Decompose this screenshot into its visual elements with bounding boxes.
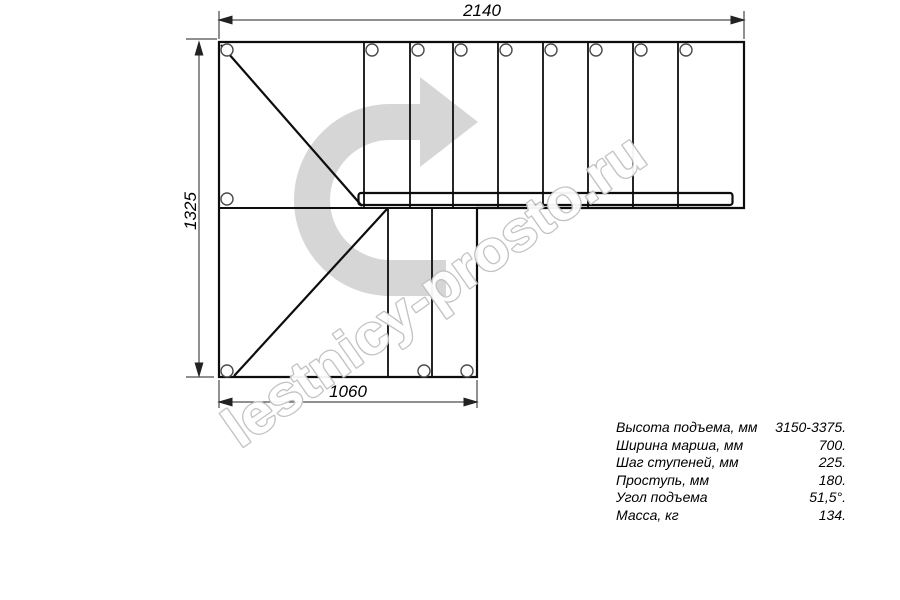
dimension-left-value: 1325 xyxy=(181,192,200,230)
spec-value: 134. xyxy=(819,507,846,525)
site-watermark-text: lestnicy-prosto.ru xyxy=(211,120,657,458)
staircase-drawing-canvas: 2140 1325 1060 lestnicy-prosto.ru Высота… xyxy=(0,0,900,600)
dimension-top: 2140 xyxy=(219,1,744,39)
bolt-hole xyxy=(545,44,557,56)
dim-arrow xyxy=(219,16,232,24)
bolt-hole xyxy=(461,365,473,377)
spec-label: Высота подъема, мм xyxy=(616,419,758,437)
bolt-hole xyxy=(221,365,233,377)
bolt-hole xyxy=(221,193,233,205)
dim-arrow xyxy=(731,16,744,24)
spec-row: Шаг ступеней, мм 225. xyxy=(616,454,846,472)
bolt-hole xyxy=(455,44,467,56)
bolt-hole xyxy=(366,44,378,56)
spec-row: Угол подъема 51,5°. xyxy=(616,489,846,507)
dim-arrow xyxy=(195,363,203,376)
spec-value: 51,5°. xyxy=(809,489,846,507)
dim-arrow xyxy=(464,398,477,406)
bolt-holes xyxy=(221,44,692,377)
spec-label: Проступь, мм xyxy=(616,472,709,490)
spec-label: Шаг ступеней, мм xyxy=(616,454,739,472)
spec-label: Ширина марша, мм xyxy=(616,437,743,455)
spec-value: 180. xyxy=(819,472,846,490)
spec-row: Ширина марша, мм 700. xyxy=(616,437,846,455)
bolt-hole xyxy=(635,44,647,56)
spec-row: Высота подъема, мм 3150-3375. xyxy=(616,419,846,437)
spec-row: Масса, кг 134. xyxy=(616,507,846,525)
bolt-hole xyxy=(680,44,692,56)
bolt-hole xyxy=(418,365,430,377)
spec-label: Угол подъема xyxy=(616,489,708,507)
spec-row: Проступь, мм 180. xyxy=(616,472,846,490)
bolt-hole xyxy=(221,44,233,56)
specs-table: Высота подъема, мм 3150-3375. Ширина мар… xyxy=(616,419,846,524)
bolt-hole xyxy=(412,44,424,56)
dim-arrow xyxy=(195,42,203,55)
bolt-hole xyxy=(590,44,602,56)
dimension-top-value: 2140 xyxy=(462,1,501,20)
dimension-left: 1325 xyxy=(181,39,217,377)
spec-value: 225. xyxy=(819,454,846,472)
spec-value: 3150-3375. xyxy=(775,419,846,437)
bolt-hole xyxy=(500,44,512,56)
spec-value: 700. xyxy=(819,437,846,455)
spec-label: Масса, кг xyxy=(616,507,679,525)
